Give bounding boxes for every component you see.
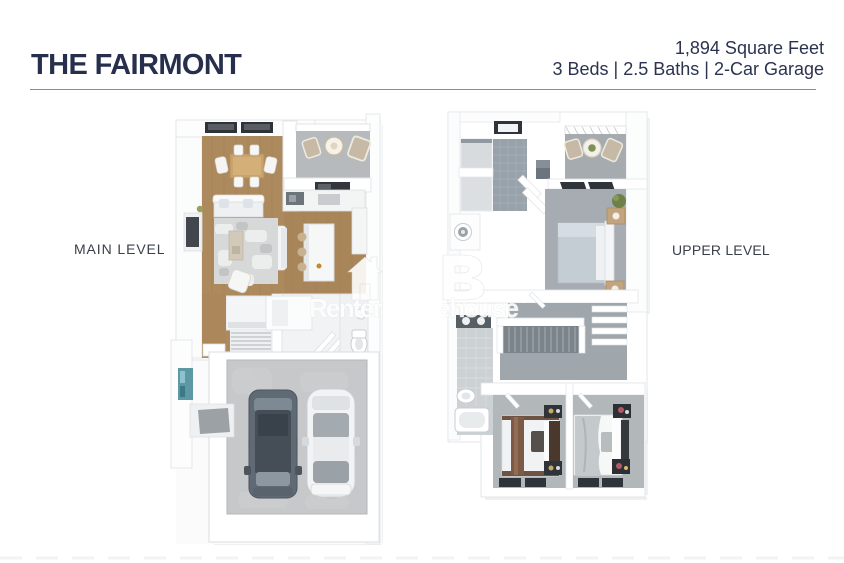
- svg-text:®: ®: [521, 295, 528, 305]
